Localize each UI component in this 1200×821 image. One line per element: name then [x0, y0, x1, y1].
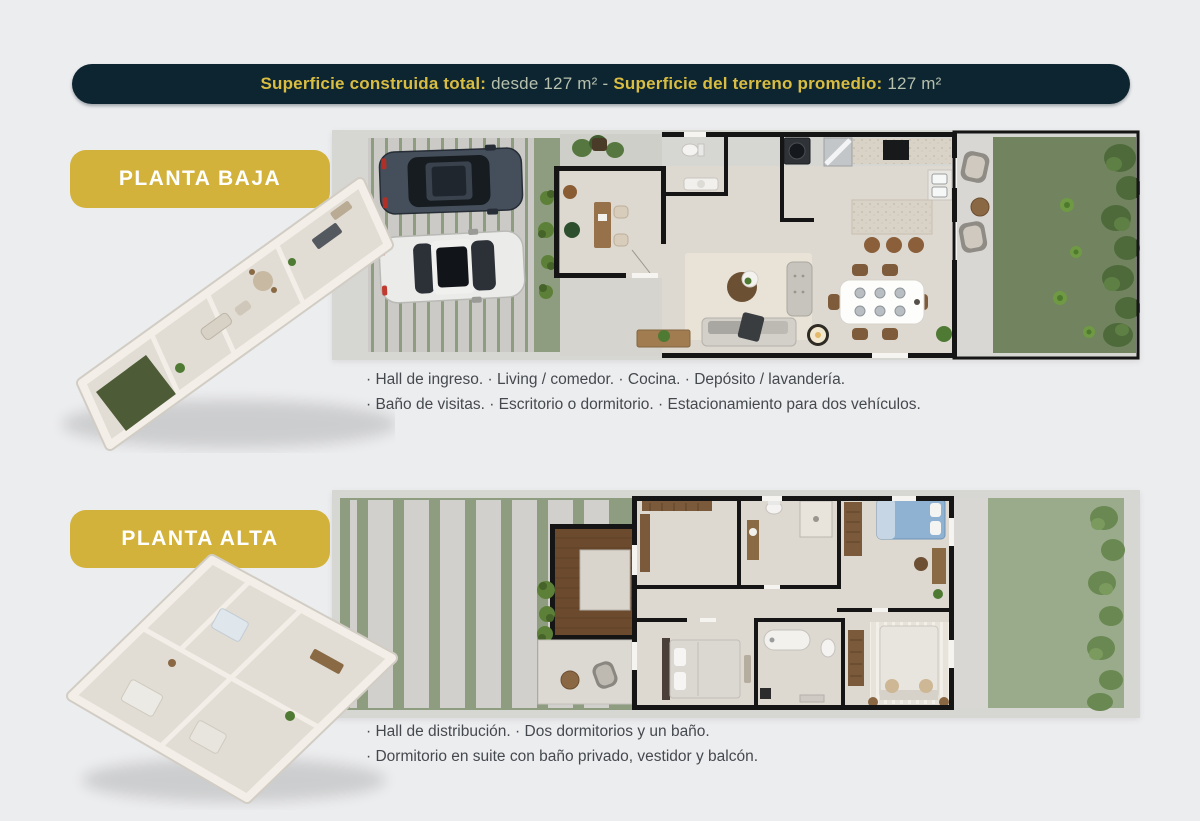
balcony-plants: [537, 581, 555, 642]
laundry-room: [784, 138, 810, 164]
balcony: [537, 524, 636, 642]
brochure-page: Superficie construida total: desde 127 m…: [0, 0, 1200, 821]
planta-alta-3d-render: [62, 548, 402, 810]
feature-line: · Hall de ingreso. · Living / comedor. ·…: [366, 367, 1006, 392]
banner-separator: -: [603, 74, 609, 94]
built-surface-value: desde 127 m²: [491, 74, 597, 94]
built-surface-label: Superficie construida total:: [260, 74, 486, 94]
iso-floorplate: [72, 560, 392, 798]
surface-banner: Superficie construida total: desde 127 m…: [72, 64, 1130, 104]
planta-baja-features: · Hall de ingreso. · Living / comedor. ·…: [366, 367, 1006, 417]
patio: [957, 137, 993, 353]
planta-alta-features: · Hall de distribución. · Dos dormitorio…: [366, 719, 1006, 769]
sedan-top-view: [378, 226, 526, 307]
planta-alta-floorplan: [332, 490, 1140, 718]
planta-baja-3d-render: [30, 168, 395, 453]
entry-court: [560, 134, 662, 166]
planta-baja-floorplan: [332, 130, 1140, 360]
feature-line: · Baño de visitas. · Escritorio o dormit…: [366, 392, 1006, 417]
terrace: [538, 640, 632, 704]
terrain-surface-label: Superficie del terreno promedio:: [613, 74, 882, 94]
suv-top-view: [379, 144, 523, 219]
garden: [993, 137, 1140, 353]
garden: [988, 498, 1125, 711]
patio: [954, 498, 988, 708]
terrain-surface-value: 127 m²: [887, 74, 941, 94]
feature-line: · Hall de distribución. · Dos dormitorio…: [366, 719, 1006, 744]
feature-line: · Dormitorio en suite con baño privado, …: [366, 744, 1006, 769]
suite-bedroom: [662, 638, 751, 700]
